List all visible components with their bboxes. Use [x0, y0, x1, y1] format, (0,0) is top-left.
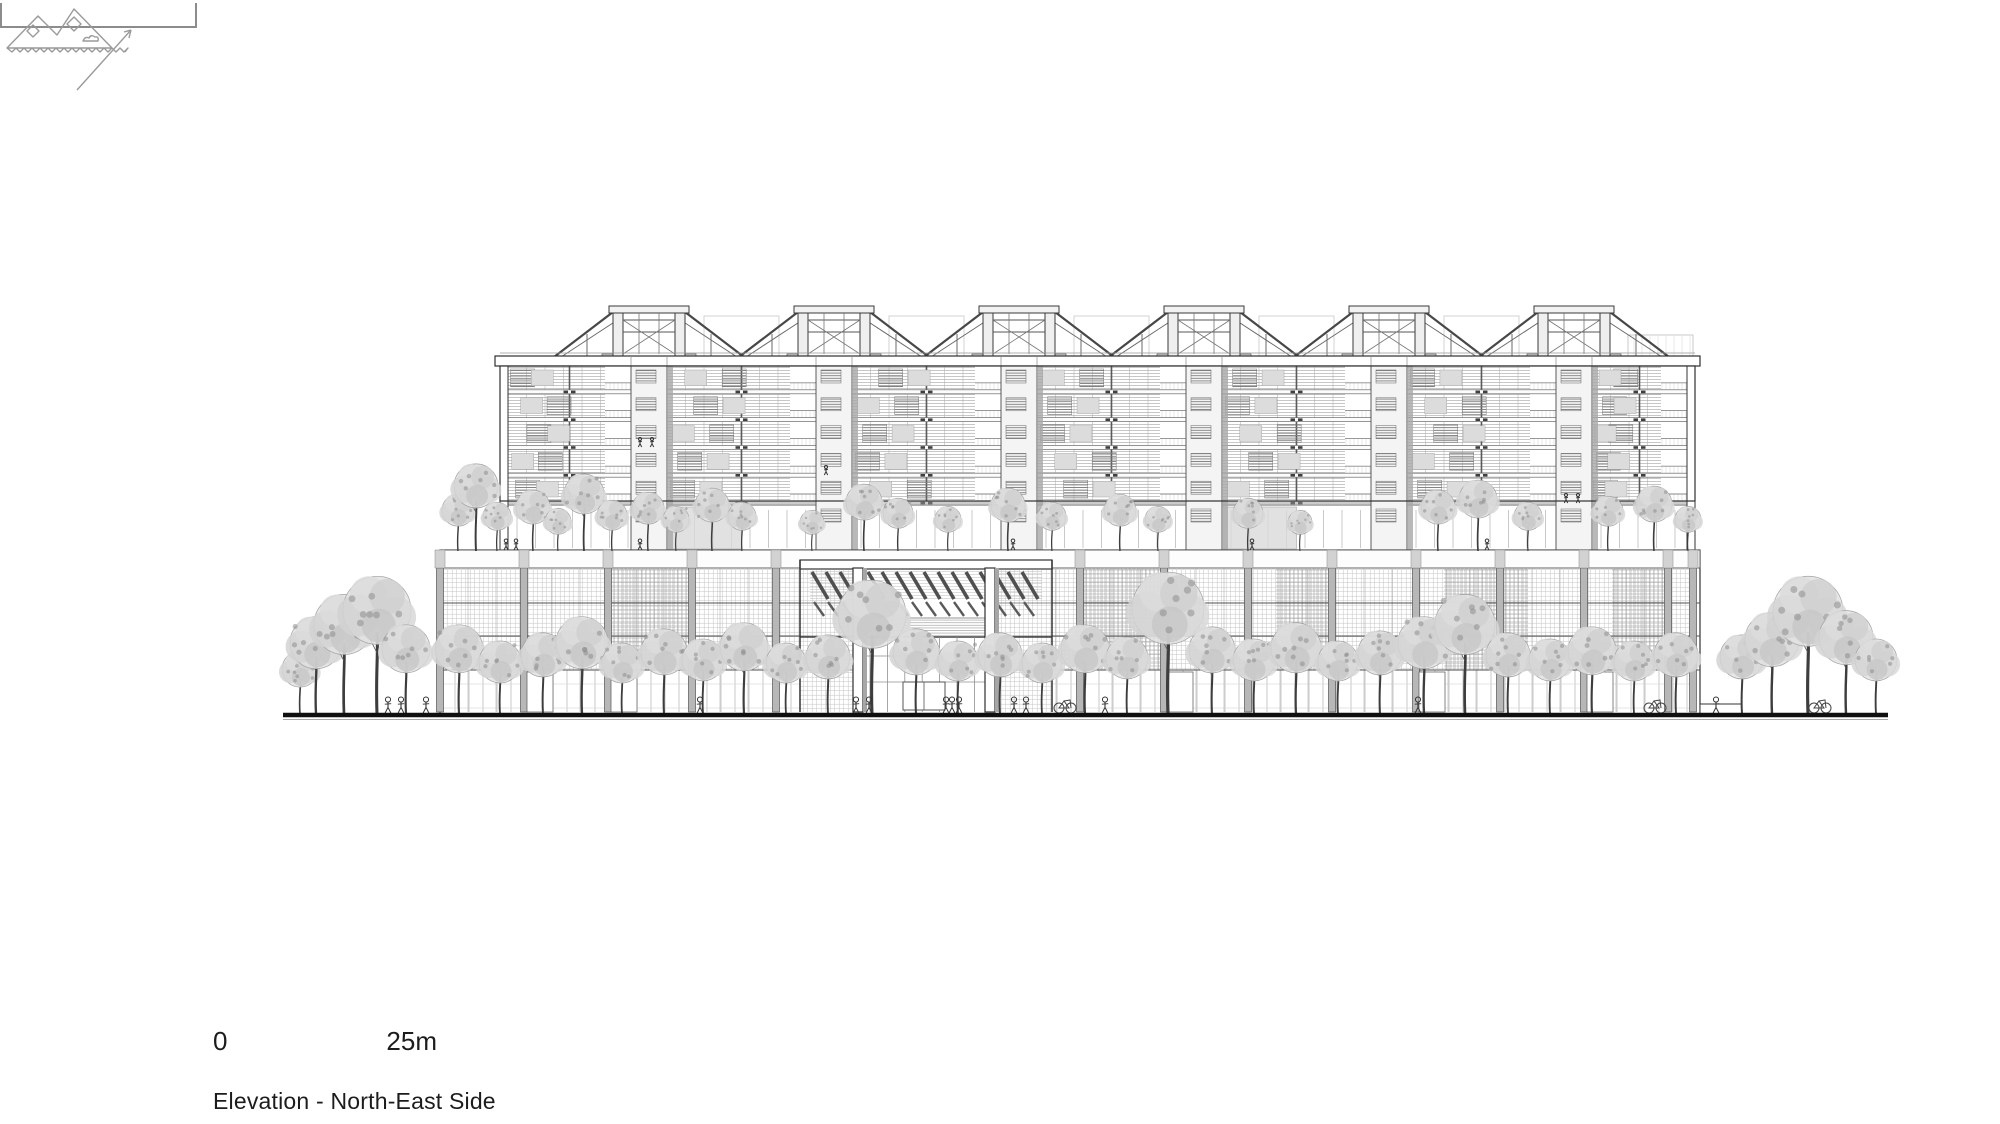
scale-start-label: 0 [213, 1026, 227, 1057]
person-figure [514, 539, 518, 550]
rooftop-trusses [554, 306, 1669, 358]
bicycle-figure [1809, 700, 1831, 713]
terrace-tree [1512, 502, 1544, 551]
elevation-sheet: 0 25m Elevation - North-East Side [0, 0, 2000, 1124]
logo-diamond-left-icon [27, 25, 39, 37]
mountains-outline-icon [7, 9, 128, 52]
site-plan-logo-icon [0, 0, 150, 92]
logo-diamond-right-icon [67, 17, 81, 31]
street-tree [378, 625, 434, 714]
person-figure [398, 697, 404, 713]
terrace-tree [933, 506, 963, 551]
terrace-tree [1418, 490, 1457, 551]
terrace-tree [1633, 486, 1675, 551]
terrace-tree [543, 508, 573, 551]
truss-tower [739, 306, 929, 358]
truss-tower [1109, 306, 1299, 358]
logo-cloud-icon [83, 36, 98, 41]
person-figure [1485, 539, 1489, 550]
truss-tower [924, 306, 1114, 358]
terrace-tree [1143, 506, 1173, 551]
drawing-caption: Elevation - North-East Side [213, 1088, 496, 1115]
ground-line [283, 715, 1888, 720]
street-tree [1851, 639, 1900, 714]
terrace-tree [594, 500, 629, 551]
terrace-tree [1673, 506, 1703, 551]
person-figure [385, 697, 391, 713]
terrace-tree [1456, 480, 1500, 551]
truss-tower [1479, 306, 1669, 358]
terrace-tree [1101, 494, 1138, 551]
elevation-drawing [0, 0, 2000, 1124]
terrace-tree [880, 498, 915, 551]
truss-tower [1294, 306, 1484, 358]
person-figure [423, 697, 429, 713]
scale-end-label: 25m [385, 1026, 437, 1057]
truss-tower [554, 306, 744, 358]
